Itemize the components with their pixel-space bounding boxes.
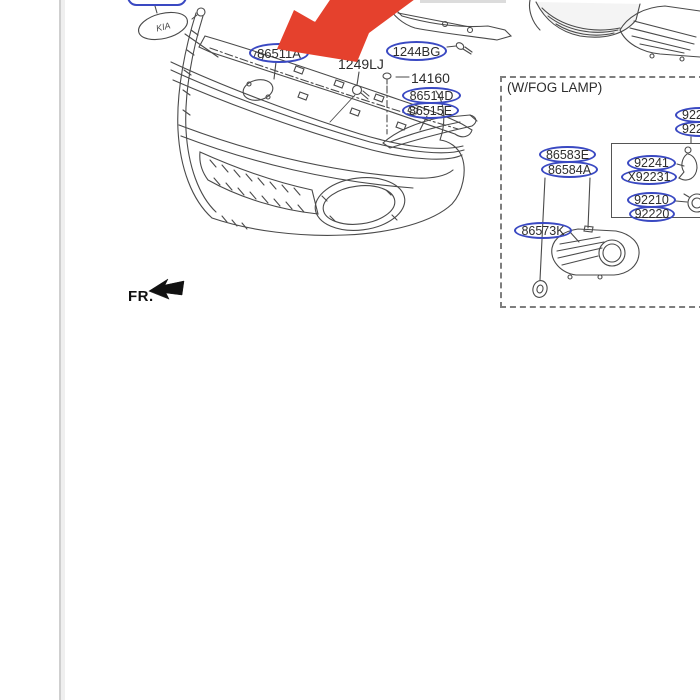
- front-direction-label: FR.: [128, 288, 154, 305]
- kia-emblem-text: KIA: [155, 20, 172, 33]
- cutoff-strip: [420, 0, 506, 3]
- part-label-14160: 14160: [411, 70, 450, 86]
- cutoff-stay-drawing: [298, 20, 330, 37]
- part-label-1244BG[interactable]: 1244BG: [386, 41, 447, 61]
- part-label-86584A[interactable]: 86584A: [541, 161, 598, 178]
- part-label-86573K[interactable]: 86573K: [514, 222, 572, 239]
- part-label-92220[interactable]: 92220: [629, 206, 675, 222]
- part-label-86511A[interactable]: 86511A: [249, 43, 309, 63]
- kia-emblem-drawing: KIA: [136, 6, 218, 57]
- upper-grille-cutoff-drawing: [529, 0, 640, 37]
- fog-lamp-section-title: (W/FOG LAMP): [507, 80, 602, 95]
- parts-diagram-image[interactable]: KIA: [0, 0, 700, 700]
- front-direction-arrow-icon: [149, 279, 184, 299]
- bumper-left-edge: [178, 13, 216, 218]
- part-label-1249LJ: 1249LJ: [338, 56, 384, 72]
- part-label-X92231[interactable]: X92231: [621, 169, 677, 185]
- part-label-cutoff-top[interactable]: [127, 0, 187, 6]
- part-label-86515E[interactable]: 86515E: [402, 102, 459, 119]
